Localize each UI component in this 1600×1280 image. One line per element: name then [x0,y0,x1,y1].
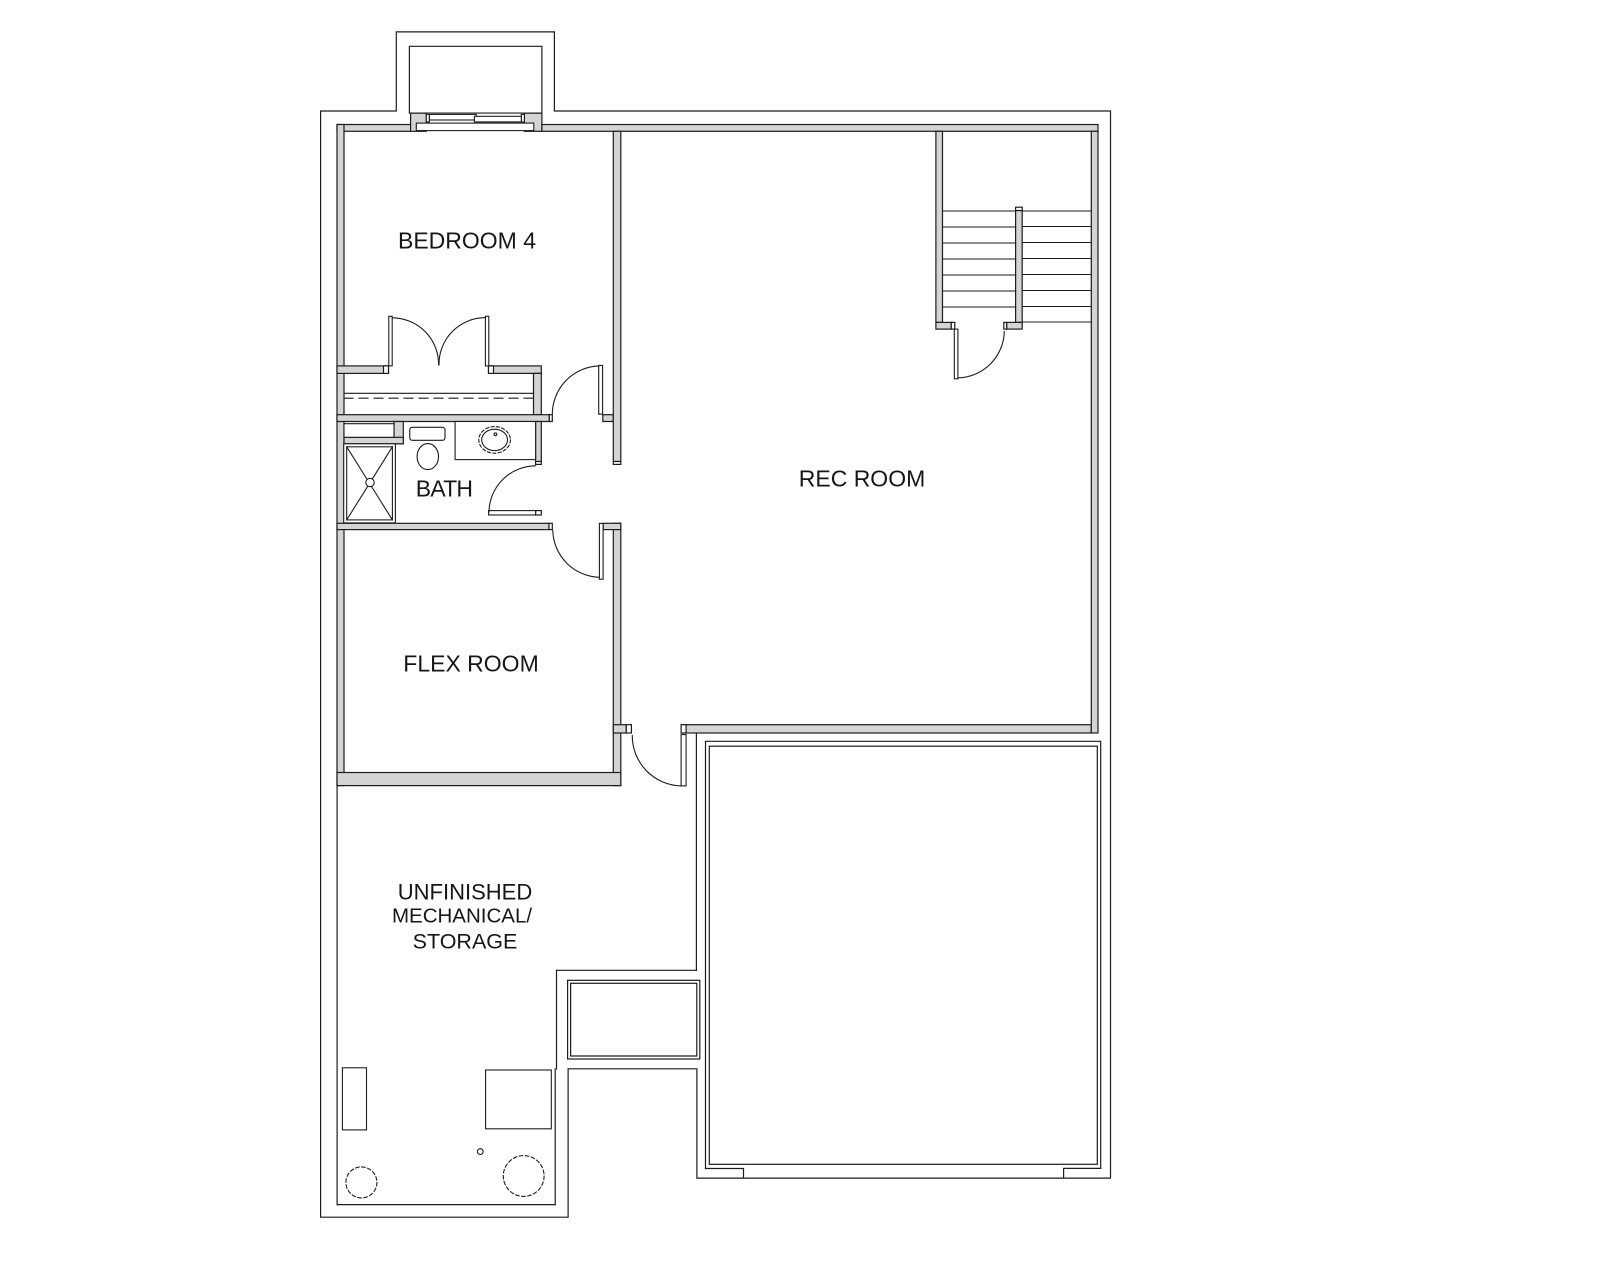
svg-text:FLEX ROOM: FLEX ROOM [403,651,538,677]
svg-text:UNFINISHED: UNFINISHED [398,880,532,905]
svg-text:STORAGE: STORAGE [413,930,518,954]
svg-text:MECHANICAL/: MECHANICAL/ [392,905,532,928]
svg-text:REC ROOM: REC ROOM [799,466,926,492]
svg-text:BATH: BATH [416,476,472,502]
svg-text:BEDROOM 4: BEDROOM 4 [398,228,536,254]
